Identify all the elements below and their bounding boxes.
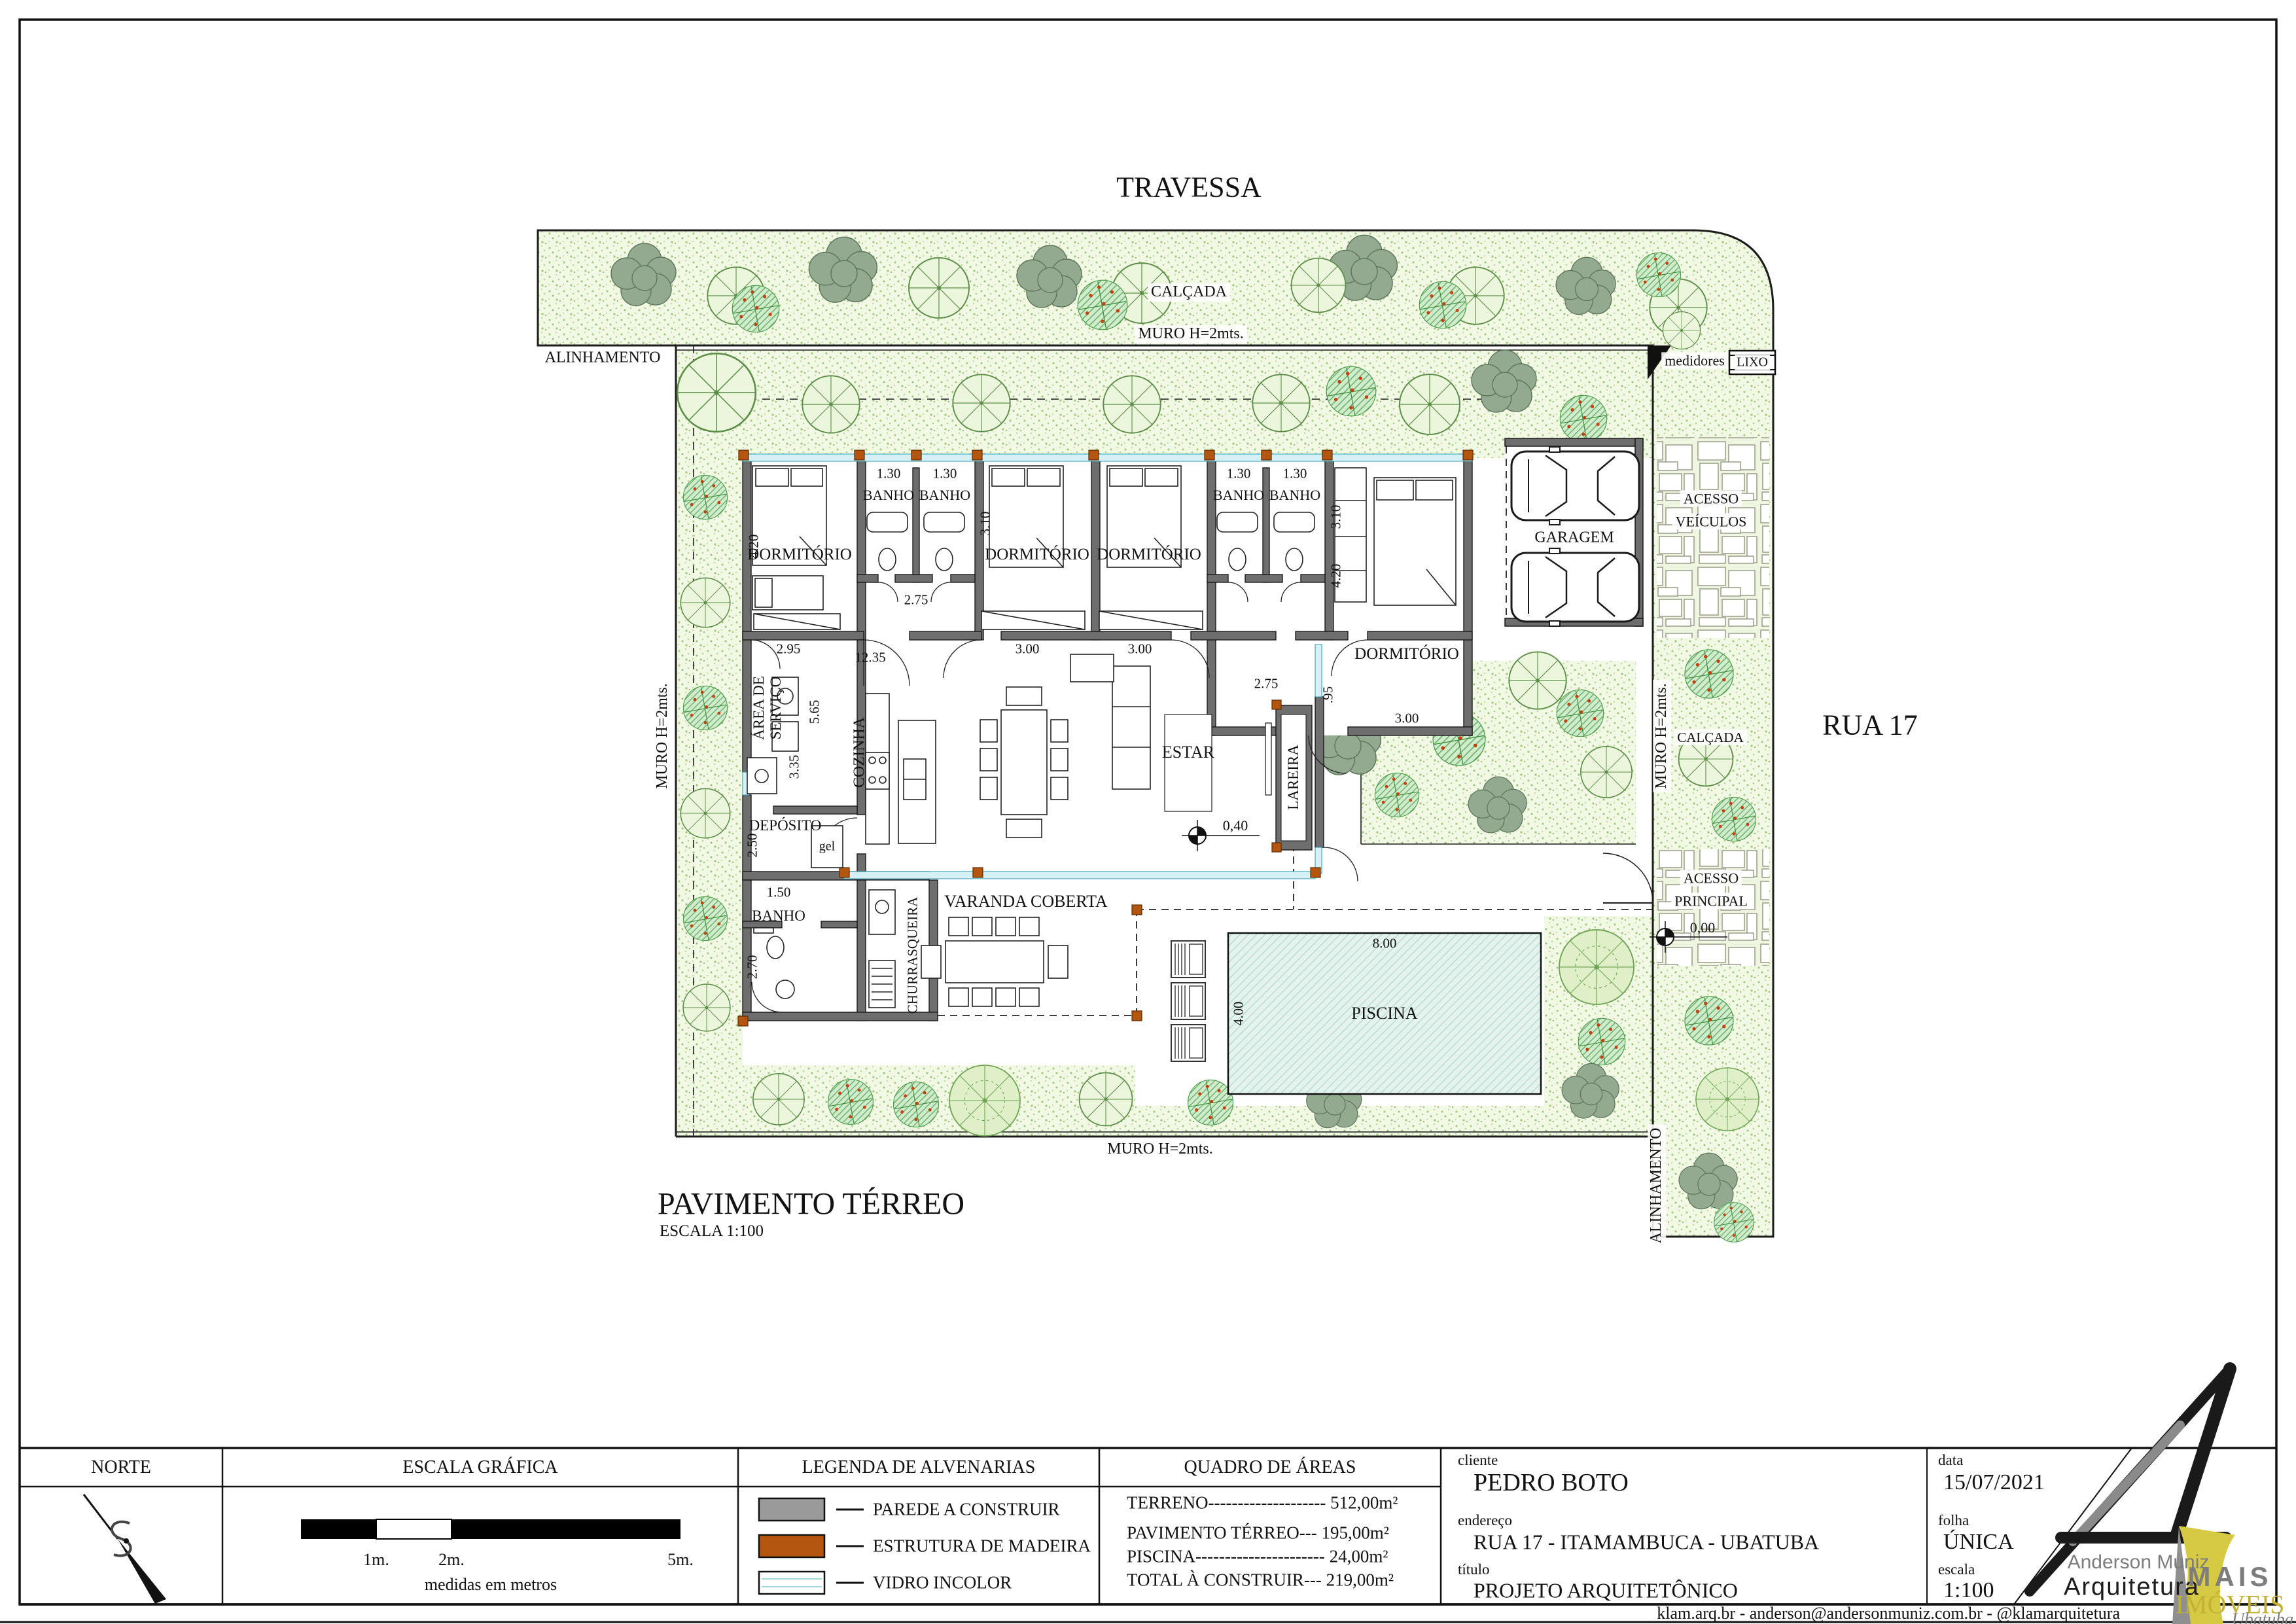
plan-title: PAVIMENTO TÉRREO bbox=[658, 1186, 964, 1222]
alinhamento-right-label: ALINHAMENTO bbox=[1648, 1125, 1666, 1247]
site-plan-drawing bbox=[0, 0, 2296, 1624]
legend-swatches bbox=[759, 1498, 864, 1594]
acesso-veiculos-label-2: VEÍCULOS bbox=[1672, 513, 1750, 529]
street-top-label: TRAVESSA bbox=[1116, 171, 1262, 204]
dim-420-b: 4.20 bbox=[1328, 564, 1345, 588]
tb-data-label: data bbox=[1938, 1452, 1963, 1469]
calcada-right-label: CALÇADA bbox=[1674, 730, 1747, 745]
level-000-label: 0,00 bbox=[1690, 919, 1716, 936]
lixo-label: LIXO bbox=[1735, 355, 1770, 370]
tb-area-total: TOTAL À CONSTRUIR--- 219,00m² bbox=[1127, 1570, 1394, 1591]
room-banho-a2: BANHO bbox=[919, 487, 970, 504]
dim-300-2: 3.00 bbox=[1128, 641, 1152, 658]
dim-130-a1: 1.30 bbox=[877, 466, 901, 482]
room-churrasqueira: CHURRASQUEIRA bbox=[905, 897, 921, 1014]
room-banho-a1: BANHO bbox=[863, 487, 914, 504]
blueprint-page: TRAVESSA RUA 17 CALÇADA MURO H=2mts. ALI… bbox=[0, 0, 2296, 1624]
scale-bar bbox=[301, 1519, 680, 1539]
tb-data-value: 15/07/2021 bbox=[1943, 1470, 2045, 1495]
room-area-servico-1: ÁREA DE bbox=[751, 676, 768, 740]
room-cozinha: COZINHA bbox=[851, 717, 869, 788]
dim-130-b2: 1.30 bbox=[1283, 466, 1307, 482]
dim-420-a: 4.20 bbox=[746, 535, 762, 559]
plan-scale: ESCALA 1:100 bbox=[660, 1222, 764, 1241]
tb-area-piscina: PISCINA---------------------- 24,00m² bbox=[1127, 1547, 1388, 1567]
muro-top-label: MURO H=2mts. bbox=[1135, 325, 1247, 344]
dim-250: 2.50 bbox=[745, 834, 761, 858]
tb-titulo-value: PROJETO ARQUITETÔNICO bbox=[1474, 1579, 1738, 1603]
room-banho-b2: BANHO bbox=[1269, 487, 1320, 504]
tb-tick-2m: 2m. bbox=[438, 1550, 465, 1570]
sun-loungers bbox=[1171, 941, 1205, 1061]
tb-tick-5m: 5m. bbox=[667, 1550, 694, 1570]
level-040-label: 0,40 bbox=[1223, 817, 1248, 834]
tb-cliente-value: PEDRO BOTO bbox=[1474, 1468, 1629, 1497]
acesso-veiculos-label-1: ACESSO bbox=[1680, 490, 1742, 506]
room-estar: ESTAR bbox=[1162, 743, 1214, 762]
dim-095: .95 bbox=[1320, 686, 1337, 703]
muro-left-label: MURO H=2mts. bbox=[654, 680, 672, 792]
dim-400: 4.00 bbox=[1231, 1002, 1247, 1026]
room-piscina: PISCINA bbox=[1351, 1004, 1417, 1023]
tb-endereco-label: endereço bbox=[1458, 1512, 1512, 1529]
dim-300-1: 3.00 bbox=[1016, 641, 1040, 658]
dim-270: 2.70 bbox=[745, 955, 761, 980]
dim-310-a: 3.10 bbox=[978, 512, 994, 536]
tb-escala-grafica-header: ESCALA GRÁFICA bbox=[402, 1457, 557, 1478]
tb-area-terreno: TERRENO-------------------- 512,00m² bbox=[1127, 1493, 1398, 1513]
tb-area-pavimento: PAVIMENTO TÉRREO--- 195,00m² bbox=[1127, 1523, 1389, 1544]
dim-130-b1: 1.30 bbox=[1227, 466, 1251, 482]
dim-335: 3.35 bbox=[786, 755, 803, 779]
room-dormitorio-2: DORMITÓRIO bbox=[985, 546, 1089, 564]
room-dormitorio-3: DORMITÓRIO bbox=[1097, 546, 1201, 564]
logo-mais: MAIS bbox=[2188, 1561, 2272, 1593]
muro-right-label: MURO H=2mts. bbox=[1653, 680, 1671, 792]
dim-800: 8.00 bbox=[1373, 936, 1397, 952]
room-varanda: VARANDA COBERTA bbox=[944, 892, 1107, 911]
tb-quadro-header: QUADRO DE ÁREAS bbox=[1184, 1457, 1356, 1478]
tb-titulo-label: título bbox=[1458, 1561, 1490, 1578]
lareira-bench bbox=[1265, 723, 1271, 795]
room-lareira: LAREIRA bbox=[1285, 745, 1302, 810]
room-banho-servico: BANHO bbox=[752, 908, 805, 925]
muro-bottom-label: MURO H=2mts. bbox=[1104, 1140, 1216, 1159]
room-dormitorio-1: DORMITÓRIO bbox=[747, 546, 852, 564]
dim-150: 1.50 bbox=[767, 885, 791, 901]
north-arrow-icon bbox=[84, 1494, 166, 1604]
footer-contacts: klam.arq.br - anderson@andersonmuniz.com… bbox=[1657, 1604, 2120, 1623]
dim-310-b: 3.10 bbox=[1328, 505, 1345, 529]
street-right-label: RUA 17 bbox=[1822, 709, 1917, 742]
alinhamento-top-label: ALINHAMENTO bbox=[545, 349, 661, 367]
dim-275-b: 2.75 bbox=[1254, 676, 1279, 692]
tb-legend-parede: PAREDE A CONSTRUIR bbox=[873, 1500, 1060, 1520]
room-dormitorio-4: DORMITÓRIO bbox=[1354, 645, 1459, 663]
tb-escala-label: escala bbox=[1938, 1561, 1975, 1578]
acesso-principal-label-1: ACESSO bbox=[1680, 870, 1742, 886]
tb-endereco-value: RUA 17 - ITAMAMBUCA - UBATUBA bbox=[1474, 1530, 1819, 1555]
dim-1235: 12.35 bbox=[855, 650, 885, 666]
logo-ubatuba: Ubatuba bbox=[2232, 1610, 2294, 1624]
room-gel: gel bbox=[819, 839, 835, 855]
medidores-label: medidores bbox=[1661, 352, 1728, 368]
tb-folha-label: folha bbox=[1938, 1512, 1969, 1529]
tb-tick-1m: 1m. bbox=[363, 1550, 389, 1570]
tb-escala-value: 1:100 bbox=[1943, 1578, 1994, 1603]
dim-565: 5.65 bbox=[807, 700, 823, 724]
tb-norte-header: NORTE bbox=[91, 1457, 151, 1478]
calcada-top-label: CALÇADA bbox=[1148, 283, 1230, 302]
tb-cliente-label: cliente bbox=[1458, 1452, 1498, 1469]
dim-130-a2: 1.30 bbox=[933, 466, 957, 482]
acesso-principal-label-2: PRINCIPAL bbox=[1671, 892, 1751, 909]
dim-295: 2.95 bbox=[777, 641, 801, 658]
dim-275-a: 2.75 bbox=[904, 592, 928, 609]
tb-legenda-header: LEGENDA DE ALVENARIAS bbox=[802, 1457, 1036, 1478]
tb-legend-vidro: VIDRO INCOLOR bbox=[873, 1573, 1012, 1593]
room-area-servico-2: SERVIÇO bbox=[768, 677, 785, 740]
room-garagem: GARAGEM bbox=[1534, 529, 1614, 547]
tb-folha-value: ÚNICA bbox=[1943, 1530, 2014, 1555]
tb-medidas: medidas em metros bbox=[425, 1575, 557, 1595]
tb-legend-madeira: ESTRUTURA DE MADEIRA bbox=[873, 1536, 1091, 1557]
room-deposito: DEPÓSITO bbox=[749, 817, 822, 834]
room-banho-b1: BANHO bbox=[1213, 487, 1264, 504]
dim-300-3: 3.00 bbox=[1395, 711, 1419, 727]
